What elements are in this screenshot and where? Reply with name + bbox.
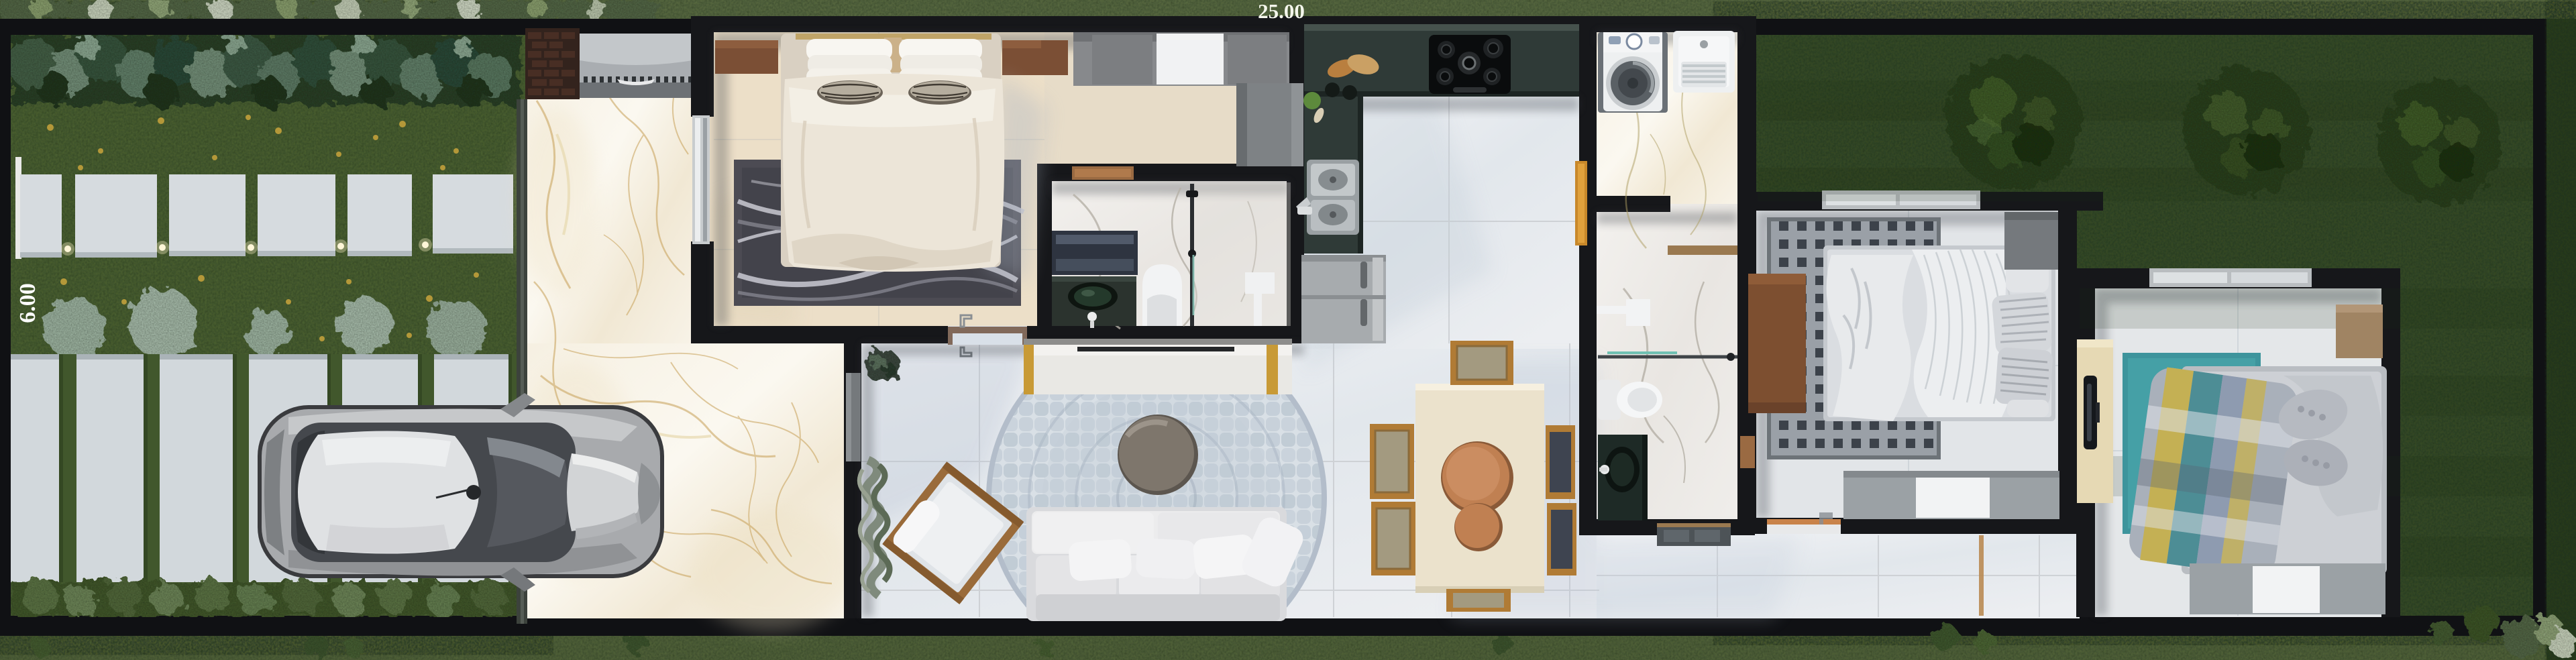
svg-text:6.00: 6.00: [15, 283, 40, 323]
svg-text:25.00: 25.00: [1258, 0, 1305, 23]
